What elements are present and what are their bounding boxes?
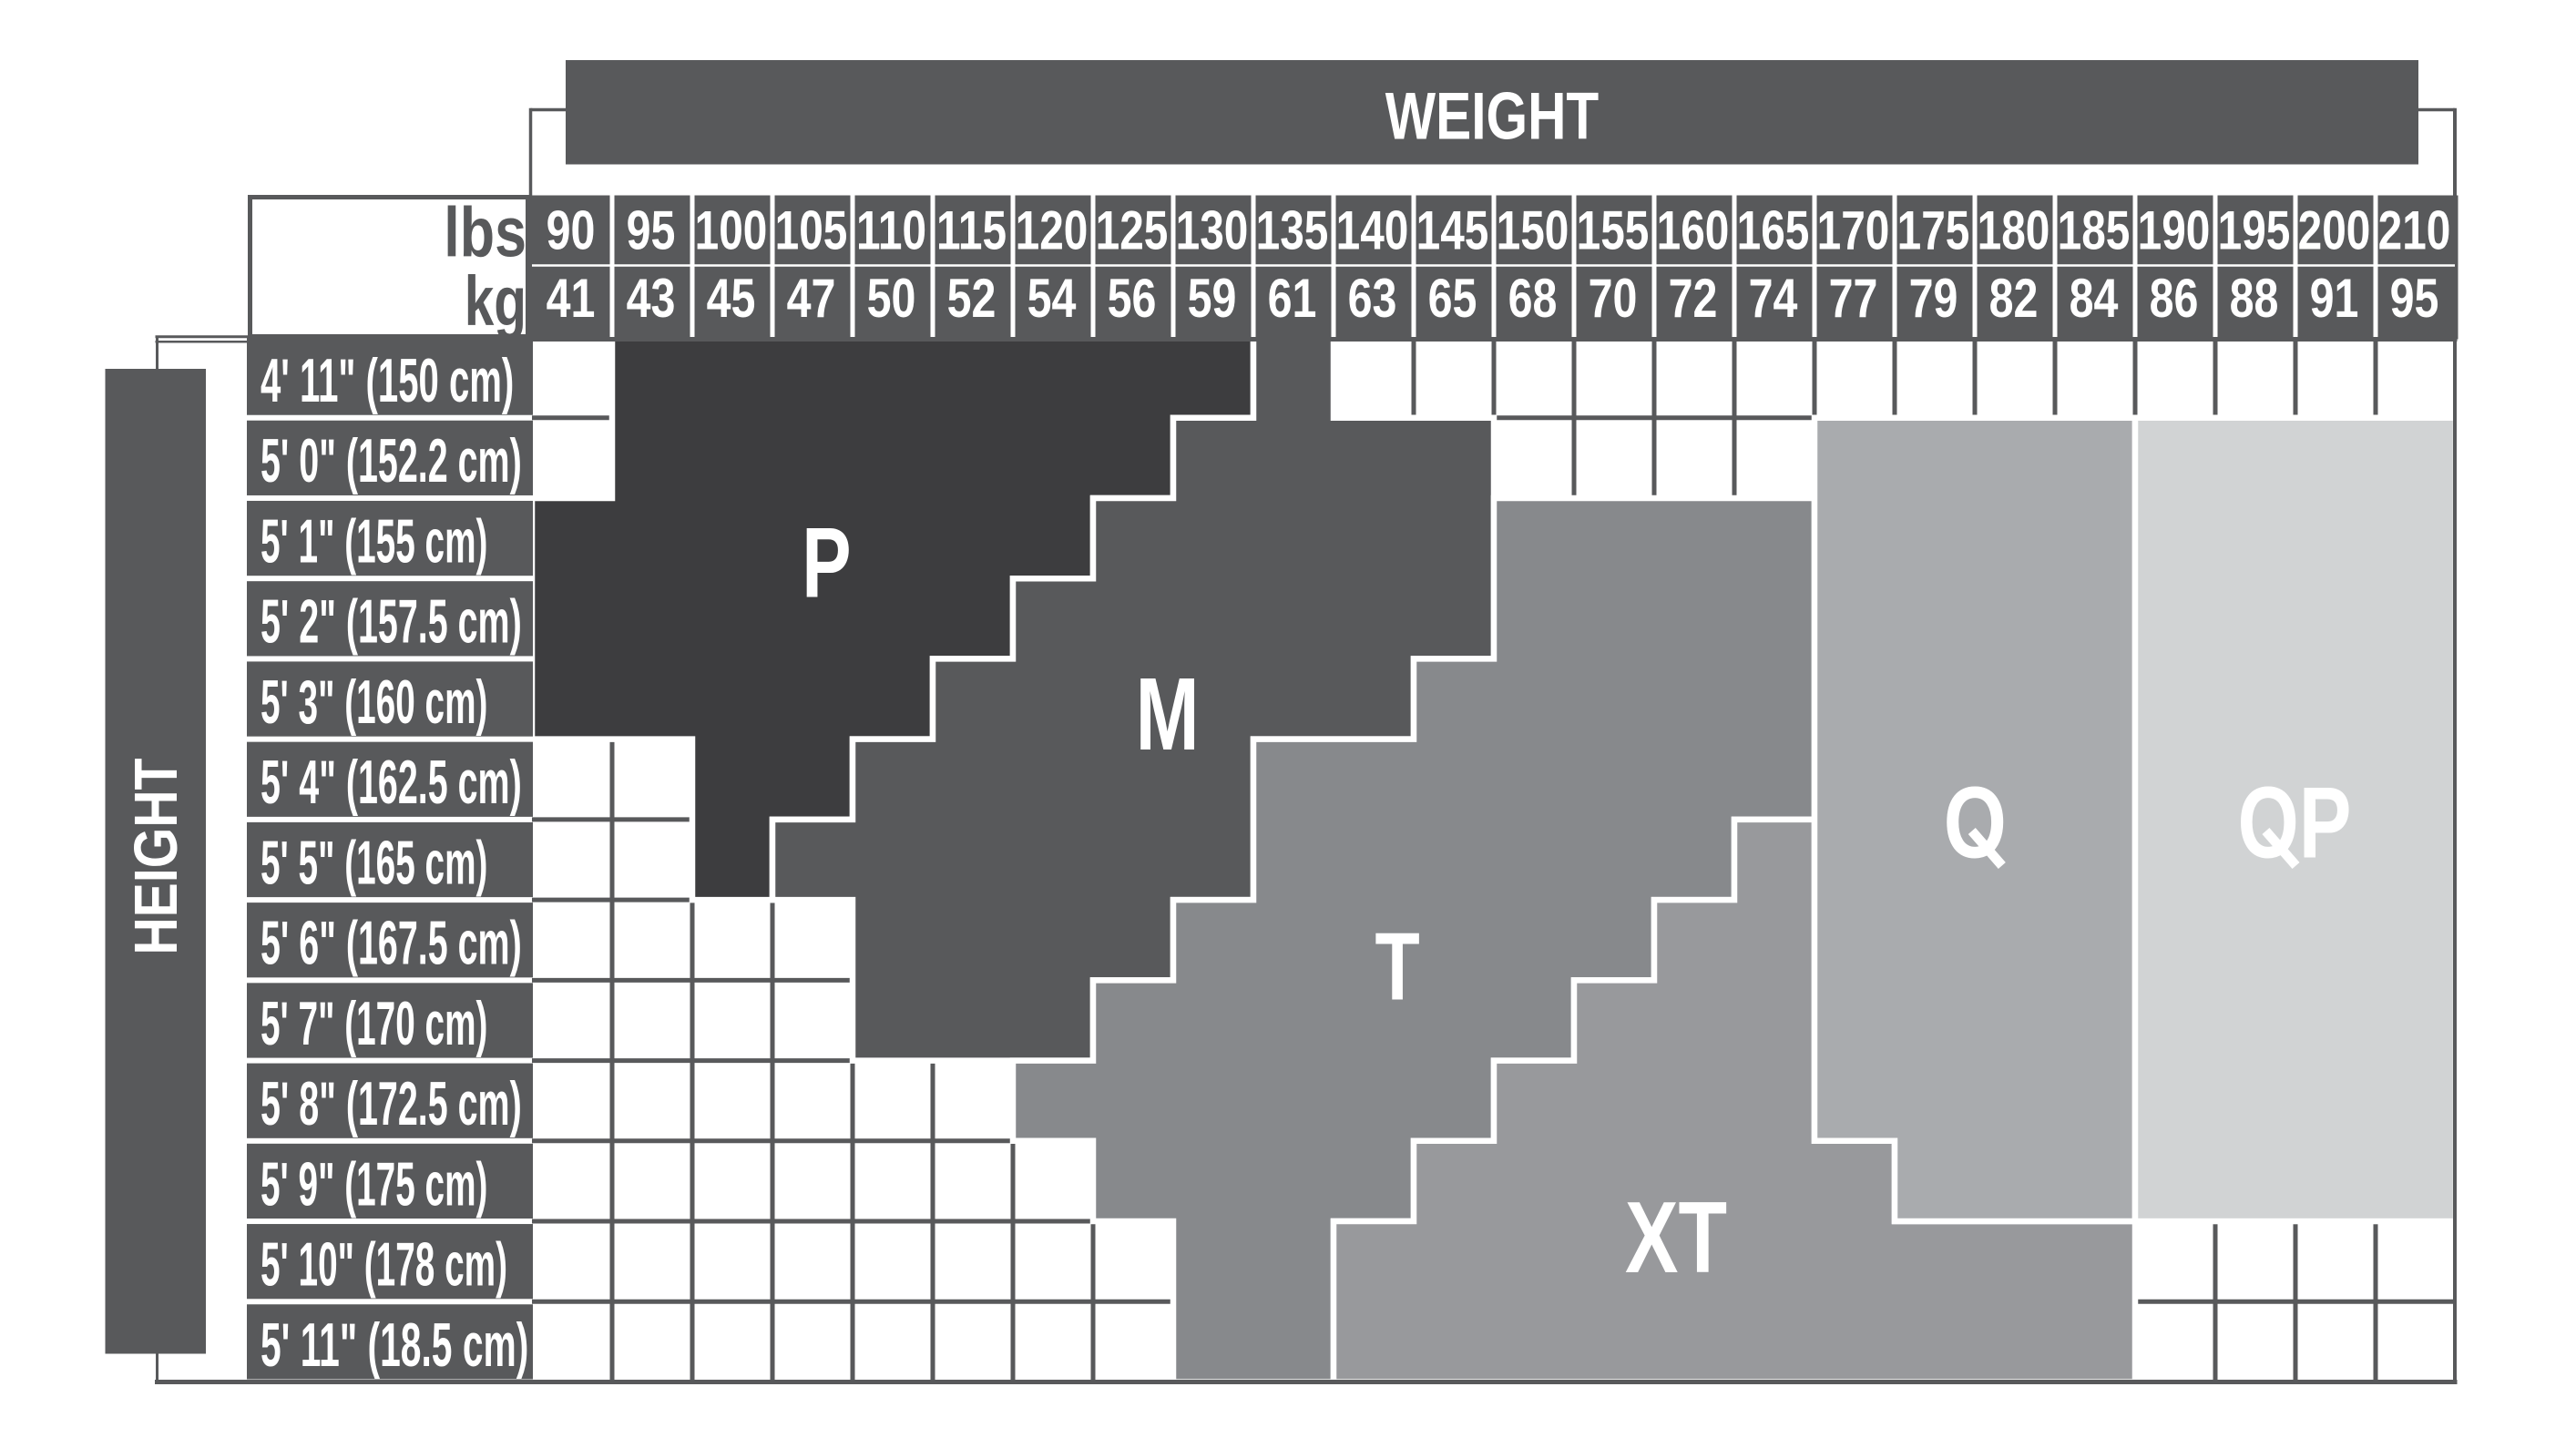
svg-text:56: 56 xyxy=(1108,267,1157,329)
svg-text:43: 43 xyxy=(627,267,676,329)
svg-text:150: 150 xyxy=(1497,199,1569,261)
svg-text:185: 185 xyxy=(2058,199,2131,261)
svg-text:90: 90 xyxy=(547,199,596,260)
svg-text:T: T xyxy=(1375,913,1419,1020)
svg-text:91: 91 xyxy=(2310,267,2359,329)
svg-text:65: 65 xyxy=(1428,267,1477,329)
svg-text:P: P xyxy=(802,506,851,619)
svg-text:5' 10" (178 cm): 5' 10" (178 cm) xyxy=(261,1229,507,1299)
svg-text:72: 72 xyxy=(1669,267,1718,329)
svg-text:lbs: lbs xyxy=(444,194,526,271)
svg-text:95: 95 xyxy=(627,199,676,260)
svg-text:105: 105 xyxy=(775,199,848,261)
svg-text:120: 120 xyxy=(1016,199,1089,261)
svg-text:115: 115 xyxy=(936,199,1007,261)
svg-text:54: 54 xyxy=(1027,267,1077,329)
svg-text:88: 88 xyxy=(2230,267,2279,329)
svg-text:5' 8" (172.5 cm): 5' 8" (172.5 cm) xyxy=(261,1069,522,1138)
svg-text:5' 3" (160 cm): 5' 3" (160 cm) xyxy=(261,667,487,736)
svg-text:5' 6" (167.5 cm): 5' 6" (167.5 cm) xyxy=(261,908,522,977)
svg-text:160: 160 xyxy=(1657,199,1730,261)
svg-text:5' 2" (157.5 cm): 5' 2" (157.5 cm) xyxy=(261,587,522,657)
svg-text:170: 170 xyxy=(1817,199,1890,261)
svg-text:41: 41 xyxy=(547,267,596,329)
svg-text:82: 82 xyxy=(1989,267,2039,329)
svg-text:79: 79 xyxy=(1909,267,1958,329)
svg-text:110: 110 xyxy=(856,199,926,261)
svg-text:180: 180 xyxy=(1978,199,2050,261)
svg-text:5' 9" (175 cm): 5' 9" (175 cm) xyxy=(261,1149,487,1219)
svg-text:175: 175 xyxy=(1897,199,1970,261)
svg-text:5' 5" (165 cm): 5' 5" (165 cm) xyxy=(261,828,487,897)
svg-text:61: 61 xyxy=(1268,267,1317,329)
svg-text:WEIGHT: WEIGHT xyxy=(1385,79,1599,154)
svg-text:84: 84 xyxy=(2070,267,2119,329)
svg-text:200: 200 xyxy=(2298,199,2371,261)
svg-text:155: 155 xyxy=(1577,199,1650,261)
svg-text:130: 130 xyxy=(1176,199,1249,261)
svg-text:210: 210 xyxy=(2378,199,2451,261)
svg-text:45: 45 xyxy=(707,267,756,329)
svg-text:165: 165 xyxy=(1737,199,1810,261)
svg-text:95: 95 xyxy=(2390,267,2439,329)
svg-text:100: 100 xyxy=(695,199,768,261)
svg-text:M: M xyxy=(1136,658,1200,772)
svg-text:74: 74 xyxy=(1749,267,1798,329)
svg-text:5' 7" (170 cm): 5' 7" (170 cm) xyxy=(261,988,487,1057)
svg-text:190: 190 xyxy=(2138,199,2211,261)
svg-text:63: 63 xyxy=(1348,267,1397,329)
svg-text:195: 195 xyxy=(2218,199,2291,261)
svg-text:5' 4" (162.5 cm): 5' 4" (162.5 cm) xyxy=(261,748,522,817)
svg-text:68: 68 xyxy=(1508,267,1558,329)
svg-text:77: 77 xyxy=(1829,267,1878,329)
svg-text:50: 50 xyxy=(867,267,916,329)
svg-text:52: 52 xyxy=(947,267,997,329)
svg-text:135: 135 xyxy=(1256,199,1329,261)
svg-text:125: 125 xyxy=(1096,199,1169,261)
svg-text:5' 1" (155 cm): 5' 1" (155 cm) xyxy=(261,506,487,576)
svg-text:5' 0" (152.2 cm): 5' 0" (152.2 cm) xyxy=(261,426,522,495)
svg-text:145: 145 xyxy=(1416,199,1489,261)
svg-text:59: 59 xyxy=(1188,267,1237,329)
svg-text:kg: kg xyxy=(465,262,526,341)
svg-text:XT: XT xyxy=(1625,1181,1727,1294)
svg-text:5' 11" (18.5 cm): 5' 11" (18.5 cm) xyxy=(261,1310,528,1379)
svg-text:140: 140 xyxy=(1336,199,1409,261)
svg-text:70: 70 xyxy=(1589,267,1638,329)
svg-text:47: 47 xyxy=(787,267,836,329)
svg-text:86: 86 xyxy=(2150,267,2199,329)
svg-text:HEIGHT: HEIGHT xyxy=(123,759,190,955)
svg-text:4' 11" (150 cm): 4' 11" (150 cm) xyxy=(261,345,514,415)
